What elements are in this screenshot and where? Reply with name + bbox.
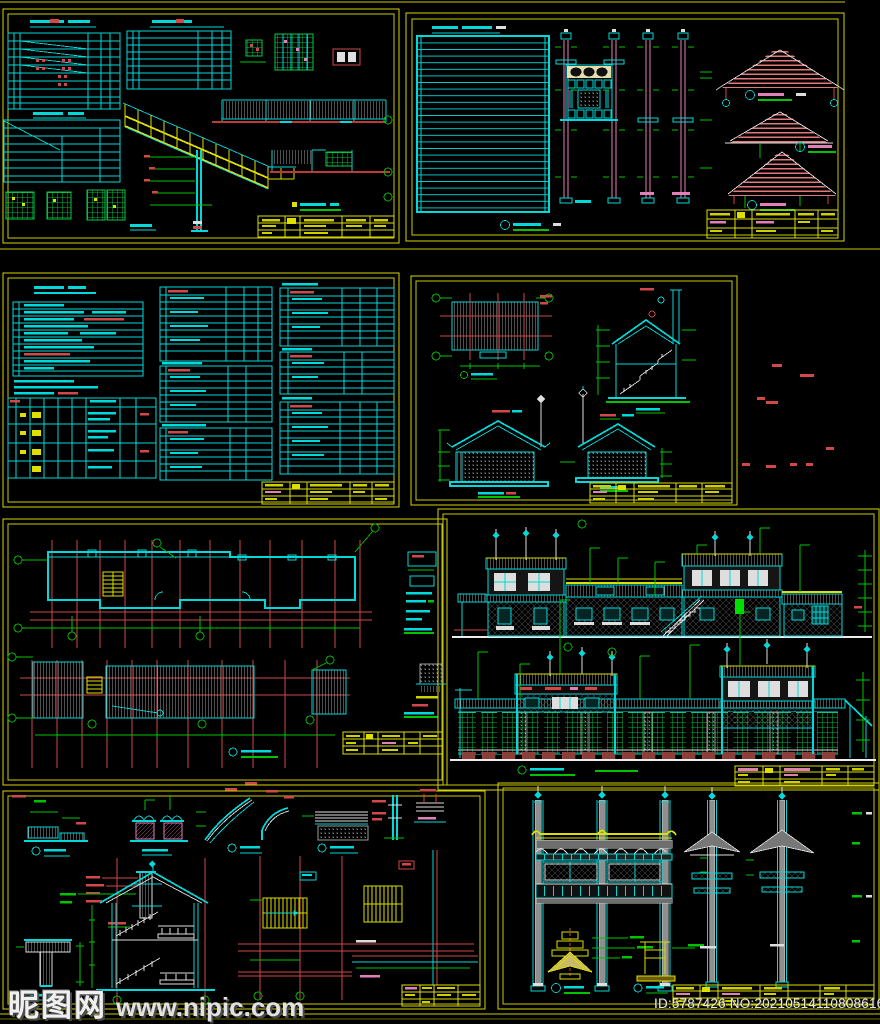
sheet-a-railing-elevations xyxy=(212,100,392,210)
sheet-a-small-panels xyxy=(240,34,360,70)
stray-red-annotation-text xyxy=(742,364,834,468)
sheet-paifang-gate-elevation-details xyxy=(498,783,879,1009)
sheet-b-arched-panel-detail xyxy=(560,65,618,120)
sheet-c-right-tables xyxy=(280,283,394,474)
sheet-b-lined-plan-block xyxy=(417,36,549,212)
sheet-e-title-block xyxy=(343,732,443,754)
sheet-g-top-detail-row xyxy=(12,782,446,985)
sheet-g-stair-plans xyxy=(238,856,478,1000)
sheet-schedules-and-notes-tables xyxy=(3,273,399,507)
nipic-watermark: 昵图网 www.nipic.com xyxy=(8,980,304,1024)
nipic-url-text: www.nipic.com xyxy=(116,992,304,1023)
sheet-construction-details-and-stairs xyxy=(3,782,485,1009)
sheet-d-building-section xyxy=(596,288,696,413)
sheet-f-upper-elevation xyxy=(452,520,872,637)
sheet-g-title-block xyxy=(402,985,480,1006)
sheet-a-schedule-table-1 xyxy=(8,33,120,109)
sheet-e-roof-plan xyxy=(8,653,350,768)
nipic-logo-text: 昵图网 xyxy=(8,980,107,1024)
sheet-c-middle-tables xyxy=(160,287,272,480)
image-id-text: ID:5787426 NO:20210514110808616103 xyxy=(654,996,880,1011)
sheet-street-building-elevations xyxy=(438,509,879,790)
sheet-e-floor-plan xyxy=(14,524,379,648)
sheet-floor-plan-and-roof-plan xyxy=(3,519,447,785)
sheet-b-columns xyxy=(555,29,694,203)
sheet-stair-and-railing-details xyxy=(3,9,399,243)
cad-drawing-collage: 昵图网 www.nipic.com ID:5787426 NO:20210514… xyxy=(0,0,880,1024)
sheet-c-notes-panel xyxy=(13,302,143,395)
cad-collage-canvas xyxy=(0,0,880,1024)
sheet-c-title xyxy=(34,286,96,293)
sheet-a-window-grids xyxy=(6,190,125,220)
sheet-b-roof-gable-diagrams xyxy=(700,50,844,210)
sheet-a-schedule-table-3 xyxy=(4,112,120,182)
sheet-h-side-pole-details xyxy=(684,787,872,987)
sheet-a-table-titles xyxy=(30,19,224,27)
sheet-column-and-roof-gable-details xyxy=(406,13,844,241)
sheet-d-gable-elevation-1 xyxy=(438,395,550,497)
sheet-a-title-block xyxy=(258,216,394,237)
sheet-h-bracket-details xyxy=(548,928,704,993)
sheet-a-schedule-table-2 xyxy=(127,31,231,89)
sheet-b-title-block xyxy=(707,210,838,238)
sheet-c-door-window-schedule xyxy=(8,398,156,478)
sheet-d-roof-plan xyxy=(432,293,553,379)
sheet-e-margin-details xyxy=(404,552,446,717)
sheet-roof-plan-and-section-elevations xyxy=(411,276,834,505)
sheet-b-title xyxy=(432,26,506,33)
sheet-c-title-block xyxy=(262,482,394,504)
